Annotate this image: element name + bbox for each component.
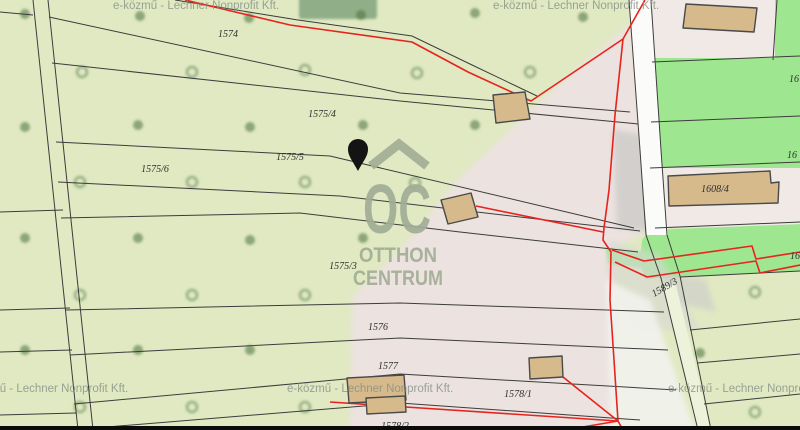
building [366,396,406,414]
parcel-label: 1608/4 [701,184,729,195]
building [493,92,530,123]
cadastral-map[interactable]: 1574 1575/4 1575/5 1575/6 1575/3 1576 15… [0,0,800,430]
parcel-label: 1578/1 [504,389,532,400]
provider-watermark: e-közmű - Lechner Nonprofit Kft. [287,383,453,395]
parcel-label: 1575/4 [308,109,336,120]
parcel-label: 16 [787,150,797,161]
parcel-label: 16 [789,74,799,85]
brand-initials: OC [363,170,431,248]
parcel-label: 16 [790,251,800,262]
building [683,4,757,32]
yard-mid [648,58,800,168]
brand-line2: CENTRUM [353,267,443,290]
parcel-label: 1575/5 [276,152,304,163]
brand-line1: OTTHON [359,244,437,267]
provider-watermark: e-közmű - Lechner Nonprofit Kft. [668,383,800,395]
yard-top-corner [775,0,800,60]
provider-watermark: e-közmű - Lechner Nonprofit Kft. [493,0,659,12]
provider-watermark: e-közmű - Lechner Nonprofit Kft. [113,0,279,12]
bottom-bar [0,426,800,430]
building [529,356,563,379]
parcel-label: 1574 [218,29,238,40]
parcel-label: 1576 [368,322,388,333]
provider-watermark: e-közmű - Lechner Nonprofit Kft. [0,383,128,395]
parcel-label: 1577 [378,361,399,372]
parcel-label: 1575/6 [141,164,169,175]
